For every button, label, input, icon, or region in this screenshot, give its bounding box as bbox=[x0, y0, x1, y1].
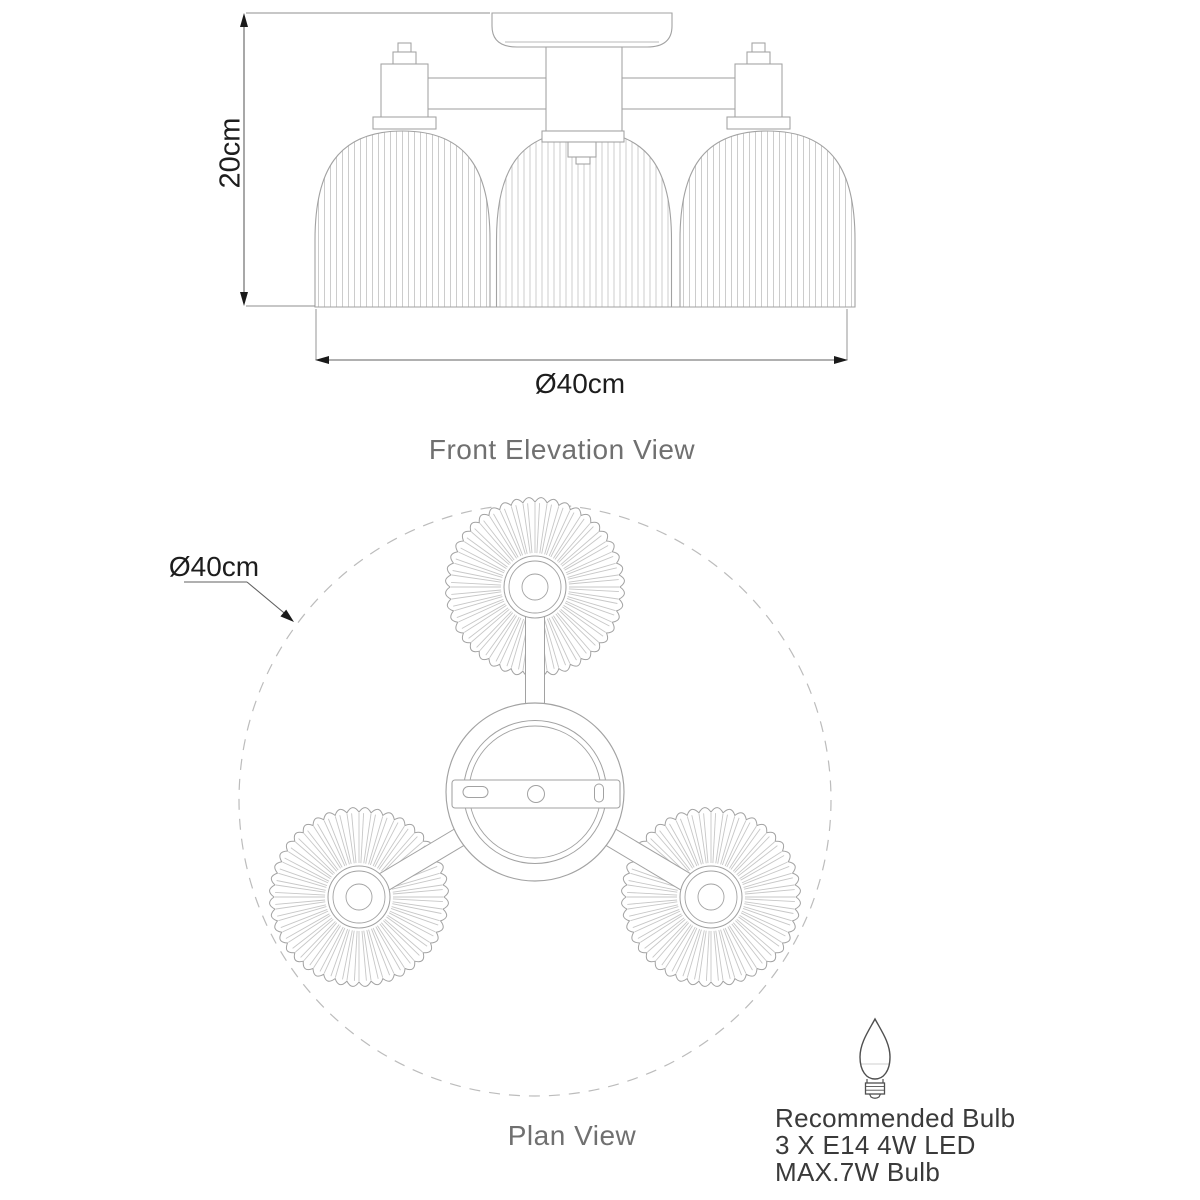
technical-drawing bbox=[0, 0, 1200, 1200]
front-elevation-drawing bbox=[315, 13, 855, 307]
plan-view-title: Plan View bbox=[508, 1120, 637, 1152]
height-dimension-label: 20cm bbox=[215, 118, 248, 189]
front-elevation-title: Front Elevation View bbox=[429, 434, 695, 466]
front-width-dimension-label: Ø40cm bbox=[535, 368, 625, 400]
plan-dimension-leader bbox=[184, 582, 294, 622]
spec-sheet: 20cm Ø40cm Front Elevation View Ø40cm Pl… bbox=[0, 0, 1200, 1200]
plan-view-drawing bbox=[239, 498, 831, 1096]
bulb-icon bbox=[860, 1019, 890, 1098]
bulb-max-line: MAX.7W Bulb bbox=[775, 1157, 940, 1188]
plan-diameter-label: Ø40cm bbox=[169, 551, 259, 583]
